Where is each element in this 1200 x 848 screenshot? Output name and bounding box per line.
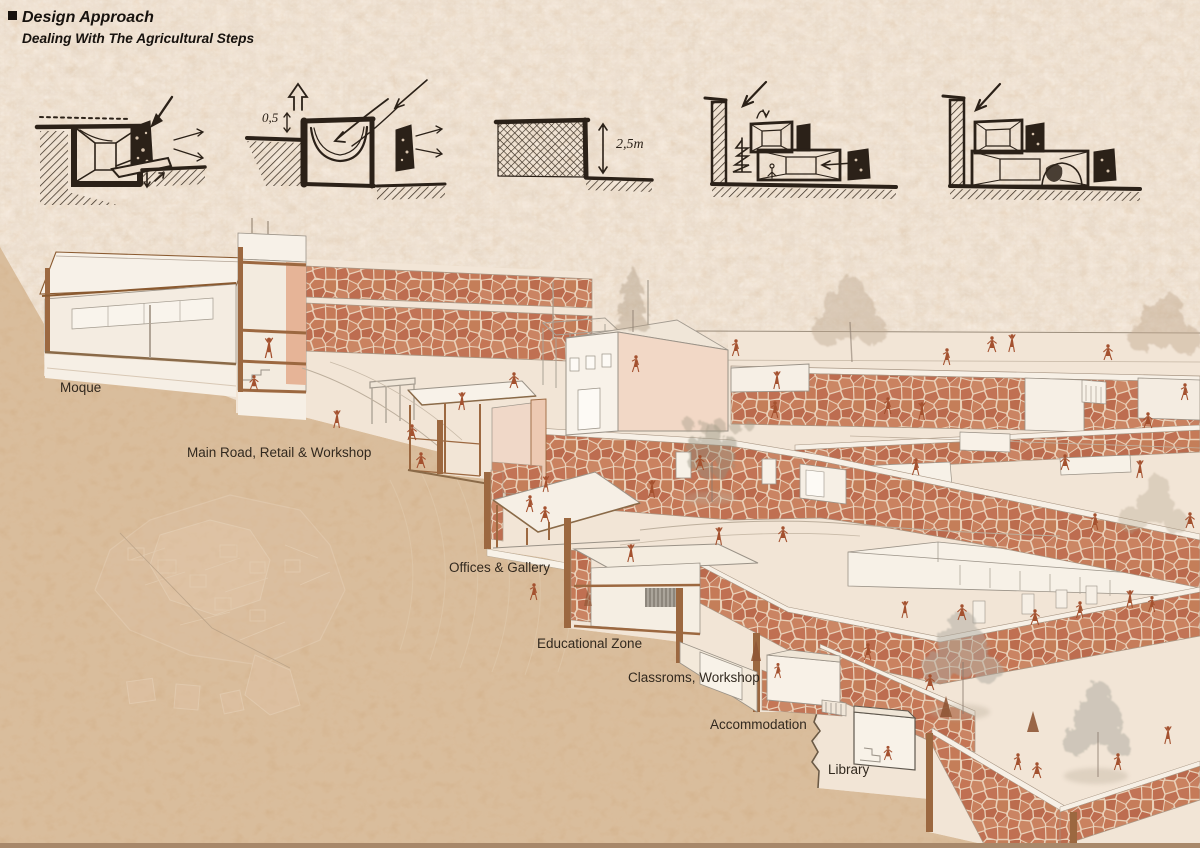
svg-text:Dealing With The Agricultural: Dealing With The Agricultural Steps — [22, 31, 254, 46]
svg-text:Classroms, Workshop: Classroms, Workshop — [628, 670, 760, 685]
svg-text:Main Road, Retail & Workshop: Main Road, Retail & Workshop — [187, 445, 371, 460]
svg-text:2,5m: 2,5m — [616, 137, 644, 152]
svg-text:Educational Zone: Educational Zone — [537, 636, 642, 651]
svg-text:Moque: Moque — [60, 380, 101, 395]
svg-text:Design Approach: Design Approach — [22, 9, 154, 26]
svg-text:Accommodation: Accommodation — [710, 717, 807, 732]
svg-text:Library: Library — [828, 762, 870, 777]
svg-text:Offices & Gallery: Offices & Gallery — [449, 560, 550, 575]
svg-text:0,5: 0,5 — [262, 110, 279, 125]
